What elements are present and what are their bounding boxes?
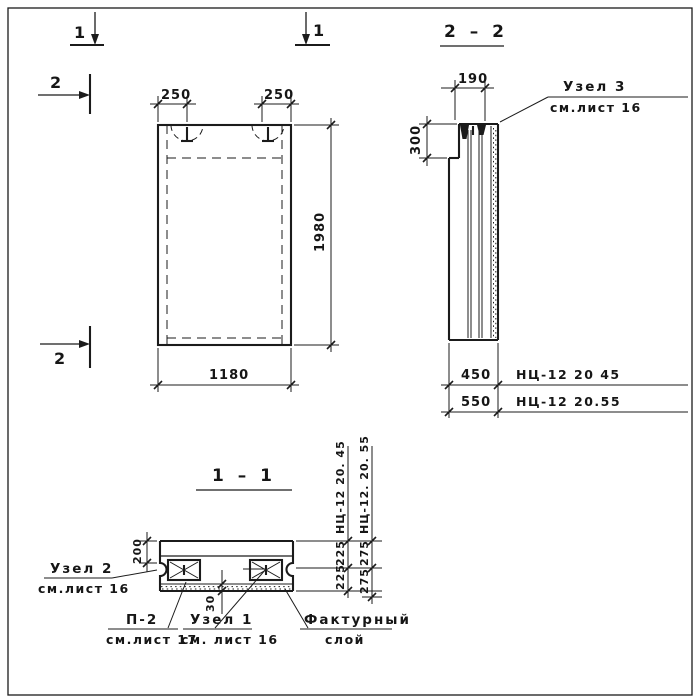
cut-marker-2-top: 2 <box>38 73 90 114</box>
mark-b-text: НЦ-12 20.55 <box>516 394 621 409</box>
dim-250-left-text: 250 <box>161 88 191 103</box>
lifting-hook-right <box>252 125 284 141</box>
facing-layer-hatch <box>491 126 496 338</box>
section-2-2-view: 2 – 2 <box>409 22 688 418</box>
node3-title-text: Узел 3 <box>563 79 626 95</box>
dim-250-right-text: 250 <box>264 88 294 103</box>
dim-1980: 1980 <box>294 118 339 352</box>
cut-marker-2-bottom: 2 <box>40 326 90 368</box>
dim-300-text: 300 <box>409 125 424 155</box>
void-right <box>250 560 282 580</box>
dim-1180: 1180 <box>150 348 299 392</box>
dim-250-left: 250 <box>150 88 196 122</box>
chain-a-label-text: НЦ-12 20. 45 <box>334 440 347 534</box>
chain-a-dim2-text: 225 <box>334 564 347 590</box>
cut-1-left-label: 1 <box>74 23 85 42</box>
cut-marker-1-right: 1 <box>295 12 330 45</box>
node3-callout: Узел 3 см.лист 16 <box>500 79 688 122</box>
dim-450-text: 450 <box>461 368 491 383</box>
dim-chain-b: НЦ-12. 20. 55 275 275 <box>358 435 376 604</box>
dim-190: 190 <box>441 72 494 121</box>
facing-title-text: Фактурный <box>304 612 411 628</box>
drawing-sheet: 1 1 2 2 <box>0 0 700 700</box>
hidden-core-lines <box>167 125 282 344</box>
section-2-2-title: 2 – 2 <box>440 22 508 46</box>
chain-b-label-text: НЦ-12. 20. 55 <box>358 435 371 534</box>
section-1-1-body <box>160 541 293 591</box>
section-2-2-title-text: 2 – 2 <box>444 22 508 42</box>
section-1-1-title-text: 1 – 1 <box>212 466 276 486</box>
dim-550-text: 550 <box>461 395 491 410</box>
chain-b-dim2-text: 275 <box>358 568 371 594</box>
drawing-canvas: 1 1 2 2 <box>0 0 700 700</box>
dim-200-text: 200 <box>131 538 144 564</box>
lifting-hook-left <box>171 125 203 141</box>
elevation-view: 250 250 1980 1180 <box>150 88 339 392</box>
facing-title2-text: слой <box>325 632 365 647</box>
dim-1980-text: 1980 <box>313 212 328 252</box>
dim-200: 200 <box>131 532 157 572</box>
panel-outline <box>158 125 291 345</box>
cut-2-top-label: 2 <box>50 73 61 92</box>
cut-1-right-label: 1 <box>313 21 324 40</box>
chain-a-dim1-text: 225 <box>334 540 347 566</box>
dim-250-right: 250 <box>254 88 299 122</box>
inner-layer-lines <box>468 130 482 338</box>
node2-ref-text: см.лист 16 <box>38 581 130 596</box>
void-left <box>168 560 200 580</box>
cut-2-bottom-label: 2 <box>54 349 65 368</box>
p2-title-text: П-2 <box>126 612 158 628</box>
node2-callout: Узел 2 см.лист 16 <box>38 561 157 596</box>
node1-ref-text: см. лист 16 <box>181 632 279 647</box>
chain-b-dim1-text: 275 <box>358 540 371 566</box>
dim-chain-a: НЦ-12 20. 45 225 225 <box>334 440 352 598</box>
cut-marker-1-left: 1 <box>70 12 104 45</box>
node3-ref-text: см.лист 16 <box>550 100 642 115</box>
section-1-1-view: 1 – 1 <box>38 435 411 647</box>
dim-550-row: 550 НЦ-12 20.55 <box>441 394 688 416</box>
section-1-1-title: 1 – 1 <box>196 466 292 490</box>
node1-title-text: Узел 1 <box>190 612 253 628</box>
mark-a-text: НЦ-12 20 45 <box>516 367 621 382</box>
section-2-2-body <box>449 124 498 340</box>
dim-30-text: 30 <box>204 595 217 612</box>
facing-layer-hatch-bottom <box>161 587 292 589</box>
dim-190-text: 190 <box>458 72 488 87</box>
dim-1180-text: 1180 <box>209 368 249 383</box>
node2-title-text: Узел 2 <box>50 561 113 577</box>
